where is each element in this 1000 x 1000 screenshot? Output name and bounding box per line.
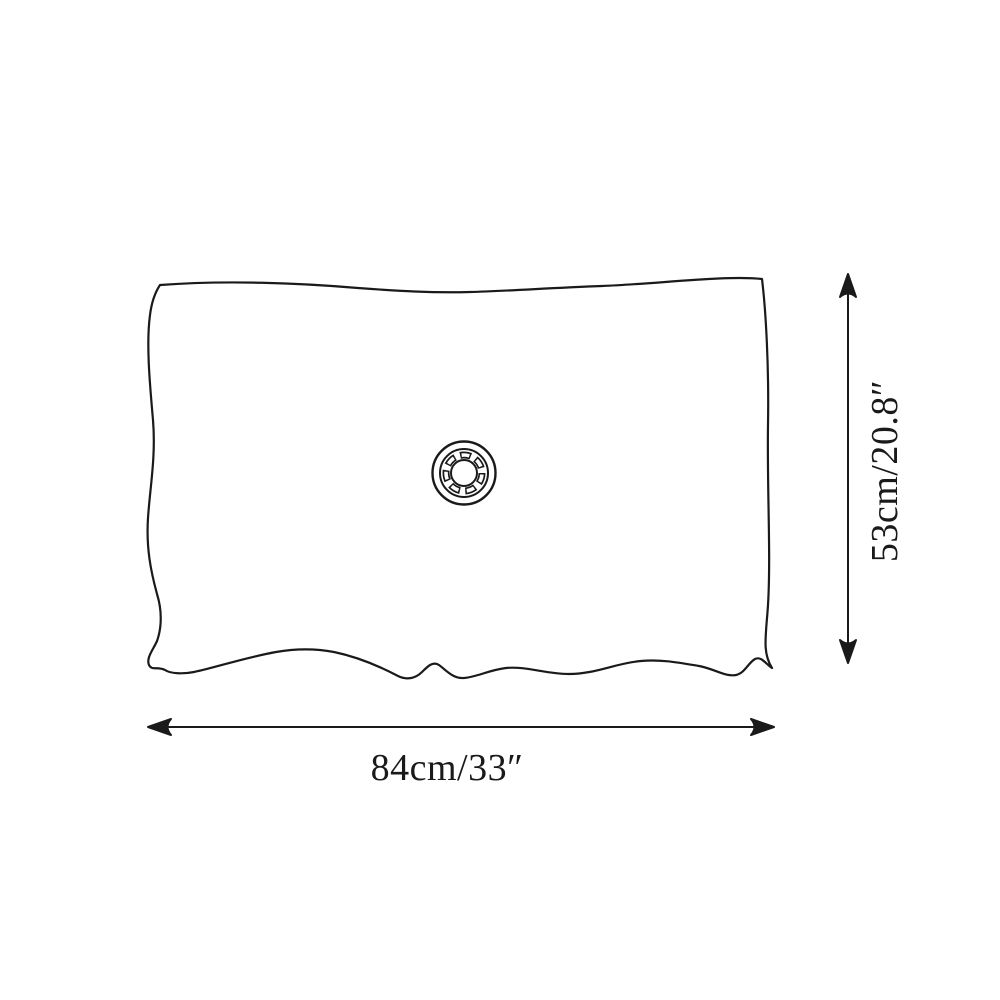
arrow-up-icon	[840, 274, 856, 297]
arrow-right-icon	[751, 719, 774, 735]
snap-button	[433, 442, 496, 505]
width-dimension-label: 84cm/33″	[371, 747, 524, 789]
height-dimension-label: 53cm/20.8″	[864, 380, 906, 562]
height-dimension: 53cm/20.8″	[840, 274, 906, 663]
arrow-down-icon	[840, 640, 856, 663]
width-dimension: 84cm/33″	[148, 719, 774, 789]
dimension-diagram-page: 53cm/20.8″ 84cm/33″	[0, 0, 1000, 1000]
arrow-left-icon	[148, 719, 171, 735]
snap-button-hole	[451, 460, 477, 486]
dimension-diagram: 53cm/20.8″ 84cm/33″	[0, 0, 1000, 1000]
diagram-ink-group: 53cm/20.8″ 84cm/33″	[148, 274, 906, 789]
